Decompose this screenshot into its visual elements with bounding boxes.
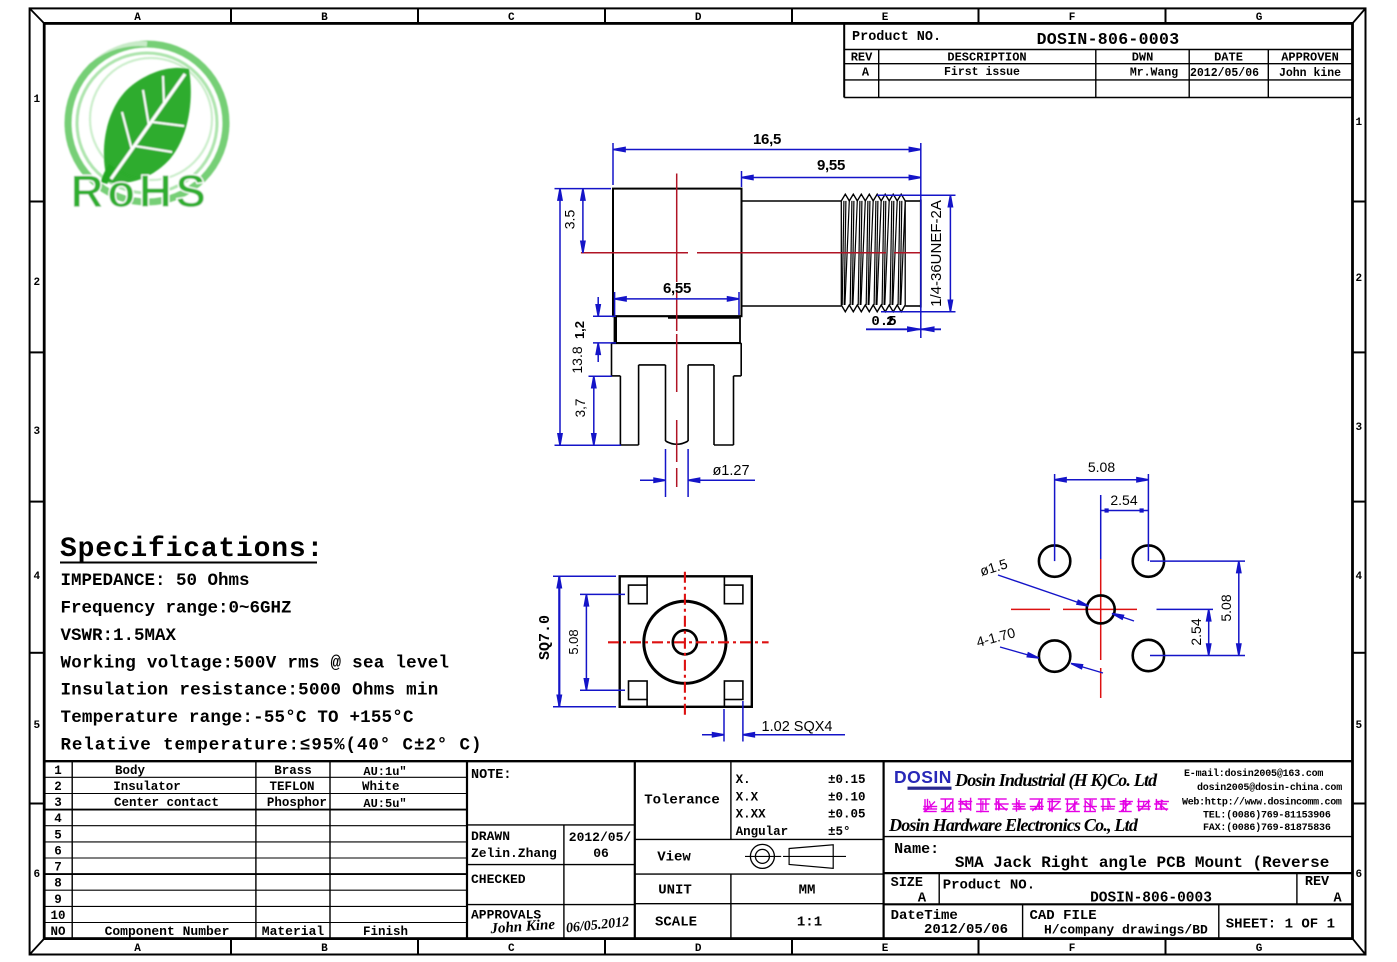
svg-text:TEL:(0086)769-81153906: TEL:(0086)769-81153906 xyxy=(1203,810,1331,822)
svg-text:Insulator: Insulator xyxy=(113,780,181,794)
svg-text:dosin2005@dosin-china.com: dosin2005@dosin-china.com xyxy=(1197,782,1342,794)
svg-text:1:1: 1:1 xyxy=(797,915,822,931)
svg-text:First issue: First issue xyxy=(944,66,1020,79)
svg-text:DWN: DWN xyxy=(1132,51,1154,65)
svg-text:E: E xyxy=(882,943,889,955)
svg-text:F: F xyxy=(1069,12,1076,24)
svg-text:Body: Body xyxy=(115,764,146,778)
svg-text:UNIT: UNIT xyxy=(658,882,692,898)
svg-text:G: G xyxy=(1256,12,1263,24)
svg-text:2: 2 xyxy=(1355,273,1362,285)
svg-text:1/4-36UNEF-2A: 1/4-36UNEF-2A xyxy=(928,200,945,307)
svg-text:White: White xyxy=(362,780,400,794)
svg-text:SQ7.0: SQ7.0 xyxy=(537,615,554,660)
svg-text:D: D xyxy=(695,943,702,955)
svg-text:H/company drawings/BD: H/company drawings/BD xyxy=(1044,923,1208,938)
svg-text:G: G xyxy=(1256,943,1263,955)
svg-text:B: B xyxy=(321,12,328,24)
svg-text:1,2: 1,2 xyxy=(572,321,587,339)
svg-text:2: 2 xyxy=(886,314,894,329)
svg-text:A: A xyxy=(134,12,141,24)
svg-text:2: 2 xyxy=(54,780,62,794)
svg-text:6: 6 xyxy=(54,845,62,859)
svg-text:3: 3 xyxy=(33,426,40,438)
svg-text:Finish: Finish xyxy=(363,925,408,939)
svg-text:RoHS: RoHS xyxy=(70,165,209,217)
svg-text:C: C xyxy=(508,12,515,24)
svg-text:MM: MM xyxy=(799,882,816,898)
svg-text:F: F xyxy=(1069,943,1076,955)
svg-text:Web:http://www.dosincomm.com: Web:http://www.dosincomm.com xyxy=(1182,797,1342,809)
svg-text:A: A xyxy=(862,66,870,80)
svg-text:Working voltage:500V rms @ sea: Working voltage:500V rms @ sea level xyxy=(61,654,450,674)
svg-text:View: View xyxy=(657,849,691,865)
svg-text:Mr.Wang: Mr.Wang xyxy=(1130,67,1178,80)
svg-text:CAD FILE: CAD FILE xyxy=(1030,908,1097,924)
svg-text:1.02 SQX4: 1.02 SQX4 xyxy=(762,719,833,735)
svg-text:AU:1u″: AU:1u″ xyxy=(363,765,406,779)
svg-text:2: 2 xyxy=(33,277,40,289)
svg-text:13.8: 13.8 xyxy=(569,346,585,373)
svg-text:2012/05/06: 2012/05/06 xyxy=(1190,67,1259,80)
svg-text:DOSIN-806-0003: DOSIN-806-0003 xyxy=(1090,891,1212,907)
svg-text:DATE: DATE xyxy=(1214,51,1243,65)
svg-text:D: D xyxy=(695,12,702,24)
svg-text:ø1.27: ø1.27 xyxy=(712,463,749,479)
svg-text:Angular: Angular xyxy=(736,825,789,839)
svg-text:Brass: Brass xyxy=(274,764,312,778)
svg-text:7: 7 xyxy=(54,861,62,875)
svg-text:DESCRIPTION: DESCRIPTION xyxy=(947,51,1026,65)
svg-text:DOSIN: DOSIN xyxy=(894,767,952,787)
svg-text:06: 06 xyxy=(593,846,609,861)
svg-text:SHEET: 1 OF 1: SHEET: 1 OF 1 xyxy=(1226,917,1335,933)
svg-text:2.54: 2.54 xyxy=(1110,492,1137,508)
svg-text:Center contact: Center contact xyxy=(114,796,219,810)
svg-text:Name:: Name: xyxy=(894,841,939,858)
svg-text:X.X: X.X xyxy=(736,790,759,804)
svg-text:NOTE:: NOTE: xyxy=(471,768,512,783)
svg-text:6: 6 xyxy=(1355,869,1362,881)
svg-text:±5°: ±5° xyxy=(828,825,851,839)
svg-text:3,7: 3,7 xyxy=(573,399,588,418)
svg-text:6: 6 xyxy=(33,869,40,881)
svg-text:SCALE: SCALE xyxy=(655,915,697,931)
svg-text:Product NO.: Product NO. xyxy=(852,30,941,45)
svg-text:Dosin Industrial (H K)Co. Ltd: Dosin Industrial (H K)Co. Ltd xyxy=(954,770,1158,791)
svg-text:±0.05: ±0.05 xyxy=(828,808,866,822)
svg-text:4: 4 xyxy=(33,571,40,583)
svg-text:FAX:(0086)769-81875836: FAX:(0086)769-81875836 xyxy=(1203,822,1331,834)
svg-text:5.08: 5.08 xyxy=(566,629,581,654)
svg-text:B: B xyxy=(321,943,328,955)
svg-text:VSWR:1.5MAX: VSWR:1.5MAX xyxy=(61,626,177,646)
svg-text:Material: Material xyxy=(262,924,325,939)
svg-text:A: A xyxy=(918,891,927,907)
svg-text:DRAWN: DRAWN xyxy=(471,829,510,844)
svg-text:9: 9 xyxy=(54,893,62,907)
svg-text:1: 1 xyxy=(54,764,62,778)
svg-text:Frequency range:0~6GHZ: Frequency range:0~6GHZ xyxy=(61,599,292,619)
svg-text:±0.10: ±0.10 xyxy=(828,790,866,804)
svg-text:TEFLON: TEFLON xyxy=(269,780,314,794)
svg-text:E-mail:dosin2005@163.com: E-mail:dosin2005@163.com xyxy=(1184,768,1323,780)
svg-text:6,55: 6,55 xyxy=(663,280,691,297)
svg-text:Product NO.: Product NO. xyxy=(943,878,1035,894)
svg-text:3: 3 xyxy=(1355,422,1362,434)
svg-text:1: 1 xyxy=(1355,117,1362,129)
svg-text:5.08: 5.08 xyxy=(1088,459,1115,475)
svg-text:4: 4 xyxy=(54,812,62,826)
svg-text:C: C xyxy=(508,943,515,955)
svg-text:A: A xyxy=(1334,892,1343,907)
svg-text:3: 3 xyxy=(54,796,62,810)
svg-text:Tolerance: Tolerance xyxy=(644,793,720,809)
svg-text:2012/05/: 2012/05/ xyxy=(569,830,632,845)
svg-text:16,5: 16,5 xyxy=(753,131,781,148)
svg-text:AU:5u″: AU:5u″ xyxy=(363,797,406,811)
svg-text:Temperature range:-55°C TO +15: Temperature range:-55°C TO +155°C xyxy=(61,708,414,728)
svg-text:SMA Jack Right angle PCB Mount: SMA Jack Right angle PCB Mount (Reverse xyxy=(955,854,1329,872)
svg-text:Specifications:: Specifications: xyxy=(60,534,324,565)
svg-text:IMPEDANCE: 50 Ohms: IMPEDANCE: 50 Ohms xyxy=(61,571,250,591)
svg-text:SIZE: SIZE xyxy=(891,876,923,891)
svg-text:10: 10 xyxy=(50,909,65,923)
svg-text:Zelin.Zhang: Zelin.Zhang xyxy=(471,846,557,861)
svg-text:2.54: 2.54 xyxy=(1188,618,1204,645)
svg-text:5: 5 xyxy=(1355,720,1362,732)
svg-text:NO: NO xyxy=(50,925,66,939)
svg-text:Phosphor: Phosphor xyxy=(267,796,327,810)
svg-text:3.5: 3.5 xyxy=(562,210,578,230)
svg-text:Insulation resistance:5000 Ohm: Insulation resistance:5000 Ohms min xyxy=(61,681,439,701)
svg-text:±0.15: ±0.15 xyxy=(828,773,866,787)
svg-text:X.XX: X.XX xyxy=(736,808,767,822)
svg-text:DOSIN-806-0003: DOSIN-806-0003 xyxy=(1037,30,1180,49)
svg-text:A: A xyxy=(134,943,141,955)
svg-text:8: 8 xyxy=(54,877,62,891)
svg-text:REV: REV xyxy=(1305,875,1330,890)
svg-text:9,55: 9,55 xyxy=(817,157,845,174)
svg-text:APPROVEN: APPROVEN xyxy=(1281,51,1339,65)
svg-text:E: E xyxy=(882,12,889,24)
svg-text:X.: X. xyxy=(736,773,751,787)
svg-text:5: 5 xyxy=(54,828,62,842)
svg-text:Relative temperature:≤95%(40°: Relative temperature:≤95%(40° C±2° C) xyxy=(61,736,483,756)
svg-text:Dosin Hardware Electronics Co.: Dosin Hardware Electronics Co., Ltd xyxy=(888,815,1139,835)
svg-text:2012/05/06: 2012/05/06 xyxy=(924,922,1008,938)
svg-text:REV: REV xyxy=(851,51,873,65)
svg-text:1: 1 xyxy=(33,94,40,106)
svg-text:5.08: 5.08 xyxy=(1218,594,1234,621)
svg-text:4: 4 xyxy=(1355,571,1362,583)
svg-text:5: 5 xyxy=(33,720,40,732)
svg-text:John kine: John kine xyxy=(1279,67,1341,80)
svg-text:CHECKED: CHECKED xyxy=(471,872,526,887)
svg-text:Component Number: Component Number xyxy=(105,924,230,939)
